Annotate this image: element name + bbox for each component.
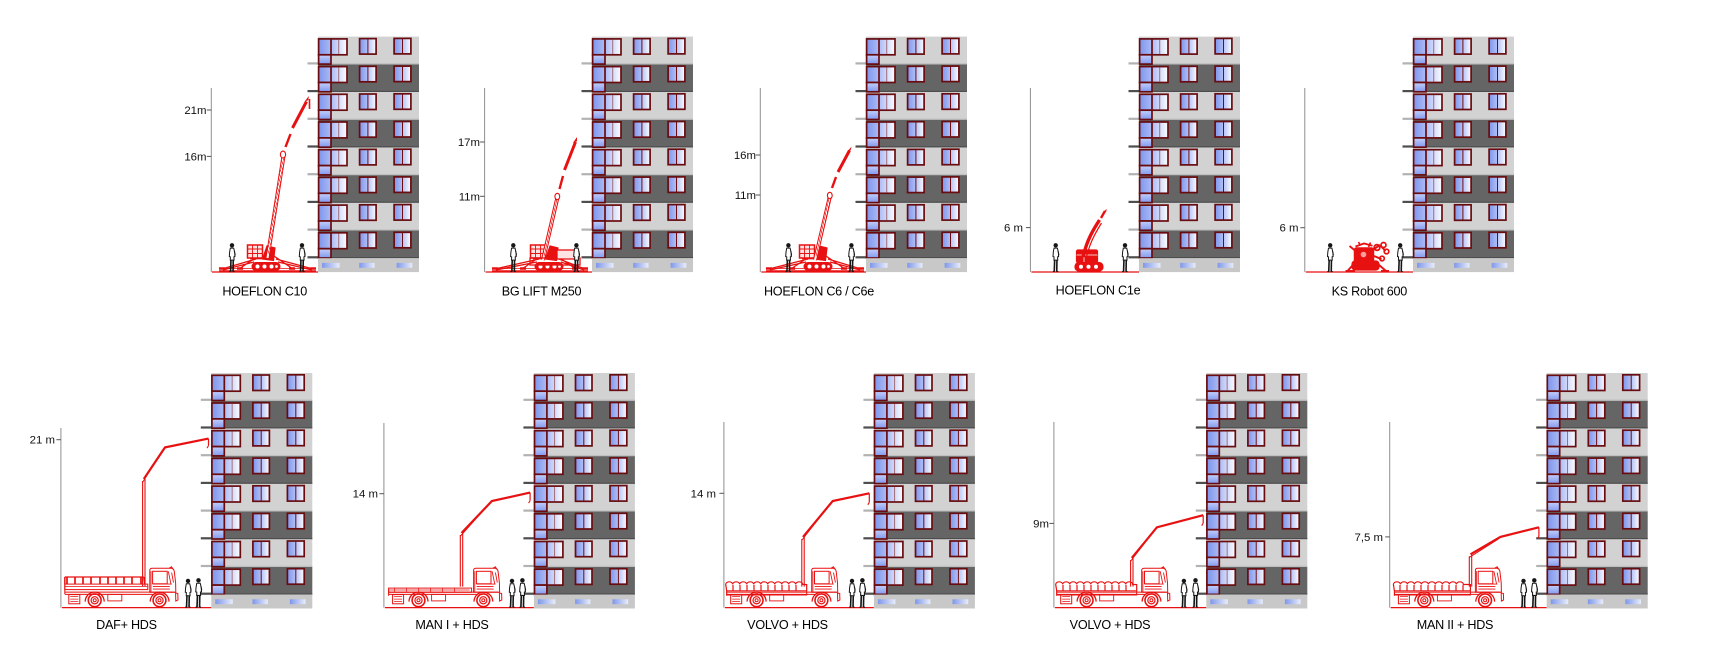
svg-text:11m: 11m xyxy=(735,190,756,202)
svg-text:7,5 m: 7,5 m xyxy=(1355,532,1384,544)
svg-text:MAN II + HDS: MAN II + HDS xyxy=(1417,618,1493,632)
svg-text:14 m: 14 m xyxy=(353,489,378,501)
svg-text:DAF+ HDS: DAF+ HDS xyxy=(96,618,157,632)
svg-text:16m: 16m xyxy=(734,150,756,162)
svg-text:21m: 21m xyxy=(184,105,206,117)
svg-text:11m: 11m xyxy=(459,191,480,203)
svg-text:BG LIFT M250: BG LIFT M250 xyxy=(502,285,582,299)
svg-text:21 m: 21 m xyxy=(30,435,55,447)
svg-text:6 m: 6 m xyxy=(1004,223,1023,235)
svg-text:17m: 17m xyxy=(458,137,480,149)
svg-text:6 m: 6 m xyxy=(1280,223,1299,235)
svg-text:HOEFLON C1e: HOEFLON C1e xyxy=(1056,284,1141,298)
svg-text:14 m: 14 m xyxy=(691,488,716,500)
svg-text:16m: 16m xyxy=(184,151,206,163)
svg-text:HOEFLON C10: HOEFLON C10 xyxy=(222,285,307,299)
svg-text:MAN I + HDS: MAN I + HDS xyxy=(415,618,488,632)
svg-text:9m: 9m xyxy=(1033,518,1049,530)
svg-text:VOLVO + HDS: VOLVO + HDS xyxy=(1070,618,1151,632)
svg-text:HOEFLON C6 / C6e: HOEFLON C6 / C6e xyxy=(764,285,874,299)
svg-text:VOLVO + HDS: VOLVO + HDS xyxy=(747,618,828,632)
svg-text:KS Robot 600: KS Robot 600 xyxy=(1332,285,1408,299)
